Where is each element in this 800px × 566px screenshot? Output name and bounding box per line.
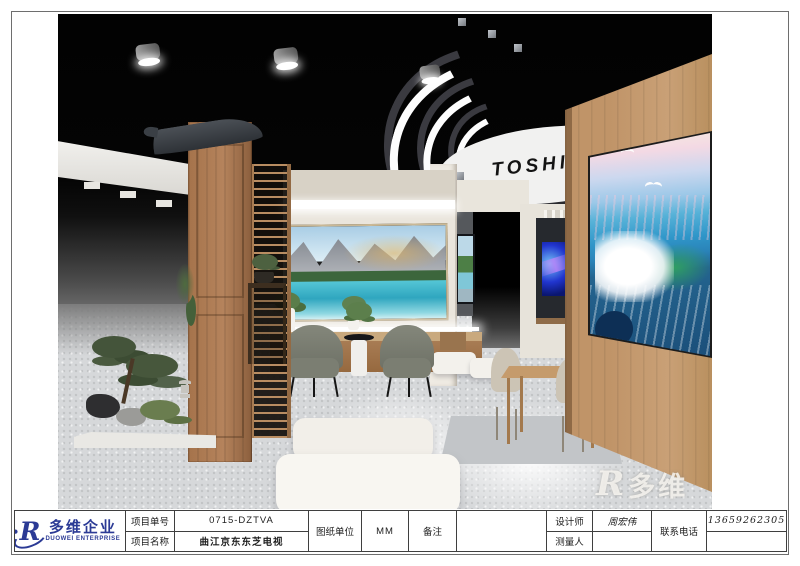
lantern-cap [179, 380, 191, 384]
table-plant [346, 302, 372, 320]
project-no-value: 0715-DZTVA [175, 511, 309, 532]
designer-value: 周宏伟 [593, 511, 652, 532]
remark-value [457, 511, 547, 552]
tv-art-golden-peaks [343, 234, 446, 272]
unit-label: 图纸单位 [309, 511, 362, 552]
garden-rock [86, 394, 120, 418]
company-name-en: DUOWEI ENTERPRISE [45, 536, 120, 542]
cylinder-downlight [419, 64, 441, 82]
company-logo-text: 多维企业 DUOWEI ENTERPRISE [45, 520, 120, 543]
armchair-leg [408, 378, 410, 397]
company-logo: R 多维企业 DUOWEI ENTERPRISE [15, 519, 125, 544]
company-name-cn: 多维企业 [45, 520, 120, 537]
watermark-logo: R 多维 [596, 464, 688, 504]
square-downlight [456, 172, 464, 180]
armchair [380, 325, 434, 397]
bamboo-foliage [176, 264, 194, 304]
watermark-text: 多维 [628, 465, 688, 504]
company-logo-mark-icon: R [20, 519, 41, 544]
table-leg [507, 378, 510, 444]
moss-patch [140, 400, 180, 420]
cove-light [283, 200, 455, 209]
chair-leg [496, 407, 498, 440]
wood-plinth [440, 332, 466, 350]
tv-abstract-screen [542, 242, 568, 296]
phone-value-empty [707, 531, 787, 552]
armchair-seat [287, 358, 340, 378]
phone-label: 联系电话 [652, 511, 707, 552]
side-table-base [351, 340, 367, 376]
armchair-leg [313, 378, 315, 397]
designer-label: 设计师 [547, 511, 593, 532]
project-no-label: 项目单号 [126, 511, 175, 532]
armchair-seat [383, 358, 431, 378]
armchair-leg [386, 377, 391, 397]
armchair-leg [426, 377, 431, 397]
square-downlight [488, 30, 496, 38]
lantern-body [181, 385, 189, 393]
scene: TOSHIBA [58, 14, 712, 509]
tv-landscape-screen [456, 234, 475, 304]
pine-tree [92, 336, 136, 358]
chair-leg [515, 409, 517, 440]
bonsai-stand [248, 283, 286, 364]
project-name-label: 项目名称 [126, 531, 175, 552]
beam-corbel [84, 182, 100, 189]
pine-tree [126, 354, 178, 378]
panel-moulding [196, 144, 244, 298]
square-downlight [514, 44, 522, 52]
bonsai-foliage [252, 254, 278, 270]
lantern-base [180, 394, 190, 398]
project-name-value: 曲江京东东芝电视 [175, 531, 309, 552]
watermark-mark-icon: R [596, 464, 624, 504]
dining-chair [491, 348, 521, 440]
beam-corbel [156, 200, 172, 207]
ocean-wave-painting [590, 133, 710, 356]
chair-leg [562, 416, 564, 452]
remark-label: 备注 [409, 511, 457, 552]
landscape-art [458, 236, 473, 302]
unit-value: MM [362, 511, 409, 552]
surveyor-label: 测量人 [547, 531, 593, 552]
square-downlight [458, 18, 466, 26]
phone-value: 13659262305 [707, 511, 787, 532]
doorway-opening [472, 212, 520, 348]
wall-top-band [283, 170, 455, 200]
beam-corbel [120, 191, 136, 198]
cylinder-downlight [135, 43, 161, 64]
company-logo-cell: R 多维企业 DUOWEI ENTERPRISE [15, 511, 126, 552]
table-leg [520, 376, 523, 432]
showroom-rendering: TOSHIBA [14, 14, 786, 509]
garden-curb [74, 432, 216, 448]
armchair-leg [333, 377, 338, 397]
surveyor-value [593, 531, 652, 552]
armchair [283, 325, 343, 397]
stone-lantern [178, 380, 192, 406]
white-ottoman-front [276, 454, 460, 509]
cylinder-downlight [273, 47, 299, 68]
bonsai-pot [254, 272, 274, 283]
zen-garden [74, 328, 216, 452]
title-block: R 多维企业 DUOWEI ENTERPRISE 项目单号 0715-DZTVA… [14, 510, 787, 552]
design-sheet: { "sheet": { "logo": { "mark": "R", "cn"… [0, 0, 800, 566]
